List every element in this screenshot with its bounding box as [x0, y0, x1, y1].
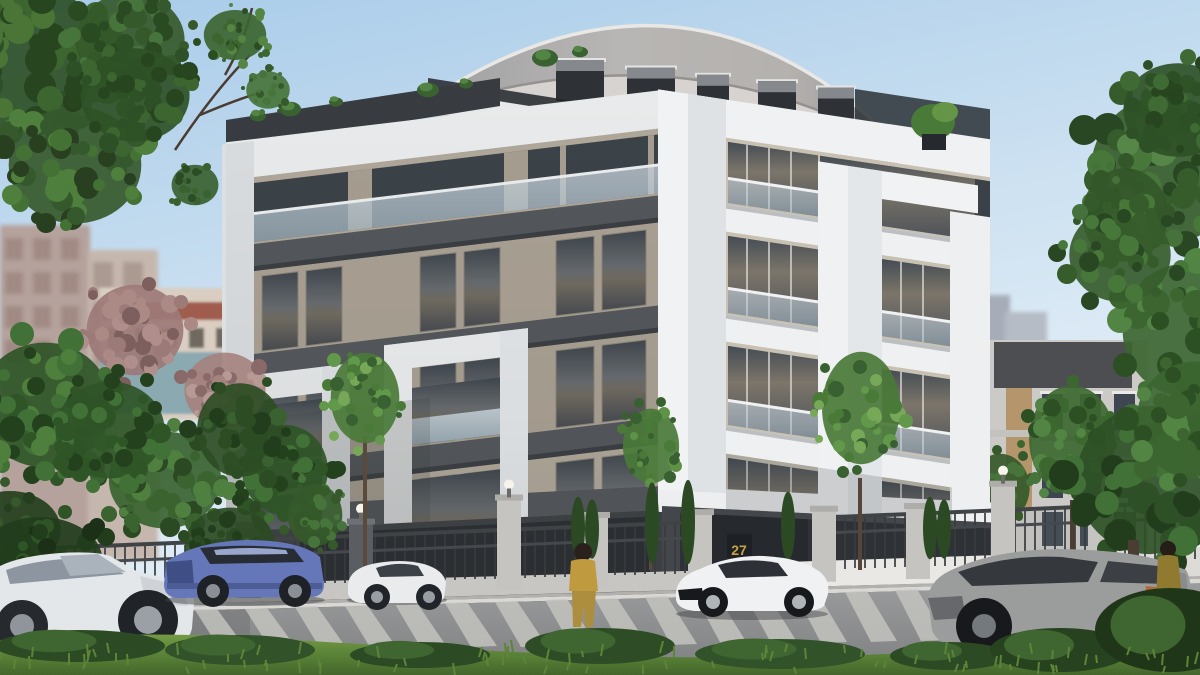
svg-text:27: 27 — [731, 542, 747, 558]
